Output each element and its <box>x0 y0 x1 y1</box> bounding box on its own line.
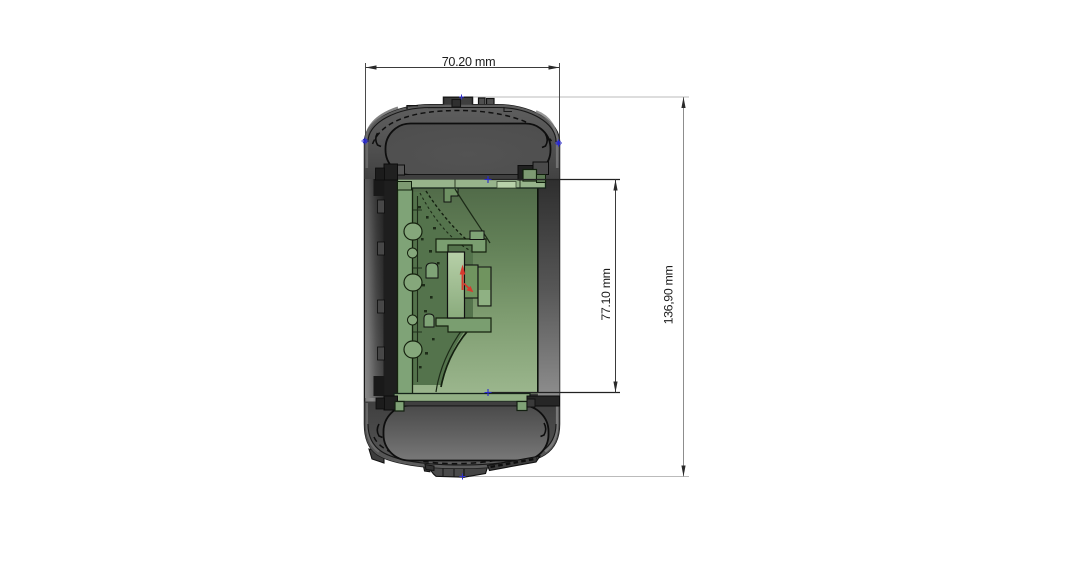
svg-text:77.10 mm: 77.10 mm <box>599 268 613 320</box>
svg-text:70.20 mm: 70.20 mm <box>442 55 496 69</box>
svg-text:136,90 mm: 136,90 mm <box>662 266 676 325</box>
